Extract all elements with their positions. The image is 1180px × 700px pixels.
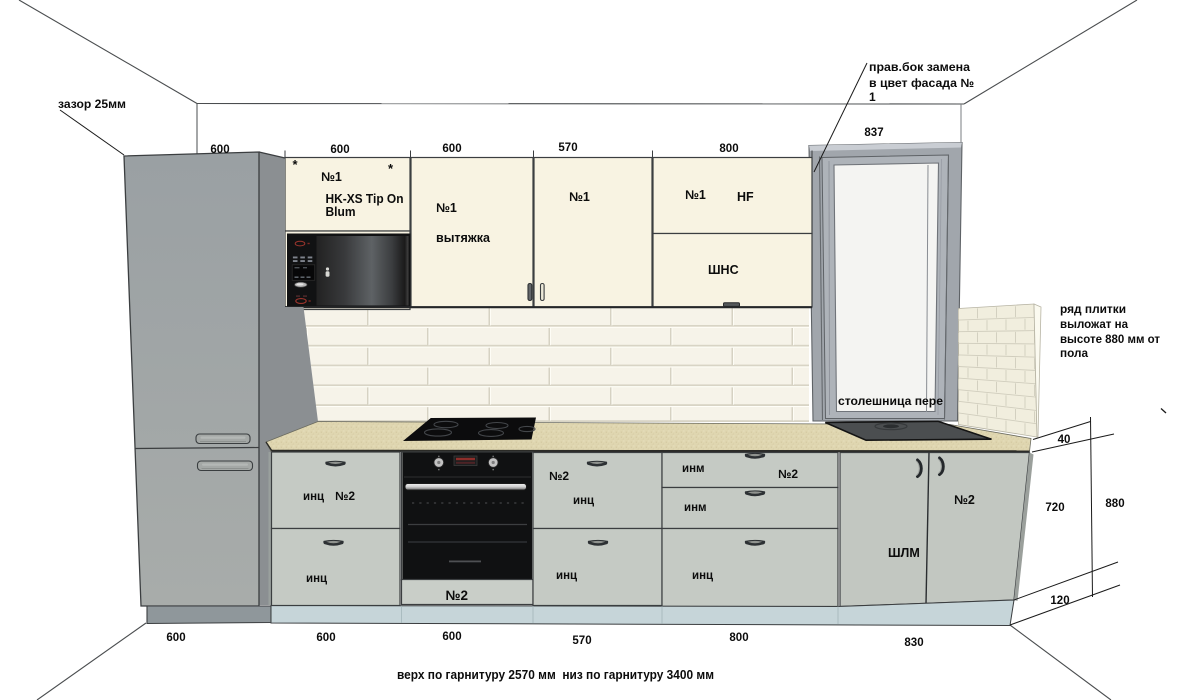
svg-text:выложат на: выложат на [1060,319,1129,331]
svg-text:830: 830 [904,637,923,649]
svg-text:№2: №2 [778,467,798,481]
svg-text:инц: инц [556,570,577,582]
svg-text:120: 120 [1050,595,1069,607]
svg-text:№1: №1 [321,170,342,184]
svg-text:800: 800 [729,632,748,644]
svg-text:столешница пере: столешница пере [838,394,943,408]
svg-text:в цвет фасада №: в цвет фасада № [869,76,974,90]
svg-text:600: 600 [330,144,349,156]
svg-text:600: 600 [442,631,461,643]
svg-text:ШНС: ШНС [708,263,739,277]
svg-text:HF: HF [737,190,754,204]
svg-text:600: 600 [166,632,185,644]
svg-text:№2: №2 [335,489,355,503]
svg-text:880: 880 [1105,498,1124,510]
svg-text:инм: инм [682,463,705,475]
svg-text:600: 600 [210,144,229,156]
svg-text:ШЛМ: ШЛМ [888,546,920,560]
svg-text:пола: пола [1060,348,1089,360]
svg-text:№2: №2 [954,493,975,507]
svg-text:высоте 880 мм от: высоте 880 мм от [1060,334,1160,346]
svg-text:570: 570 [572,635,591,647]
svg-text:№1: №1 [436,201,457,215]
svg-text:1: 1 [869,90,876,104]
svg-text:вытяжка: вытяжка [436,231,491,245]
svg-text:№2: №2 [446,588,469,603]
svg-text:№1: №1 [685,188,706,202]
svg-text:инц: инц [303,491,324,503]
svg-text:800: 800 [719,143,738,155]
svg-text:Blum: Blum [326,205,356,219]
svg-text:инц: инц [692,570,713,582]
svg-text:№1: №1 [569,190,590,204]
svg-text:720: 720 [1045,502,1064,514]
svg-text:40: 40 [1058,434,1071,446]
svg-text:ряд плитки: ряд плитки [1060,304,1126,316]
svg-text:инц: инц [573,495,594,507]
svg-text:инм: инм [684,502,707,514]
svg-text:инц: инц [306,573,327,585]
svg-text:верх по гарнитуру 2570 мм низ: верх по гарнитуру 2570 мм низ по гарниту… [397,667,714,682]
svg-text:прав.бок замена: прав.бок замена [869,60,970,74]
svg-text:№2: №2 [549,469,569,483]
svg-text:837: 837 [864,127,883,139]
svg-text:600: 600 [442,143,461,155]
svg-text:600: 600 [316,632,335,644]
svg-text:зазор 25мм: зазор 25мм [58,97,126,111]
svg-text:570: 570 [558,142,577,154]
svg-text:HK-XS Tip On: HK-XS Tip On [326,192,404,206]
